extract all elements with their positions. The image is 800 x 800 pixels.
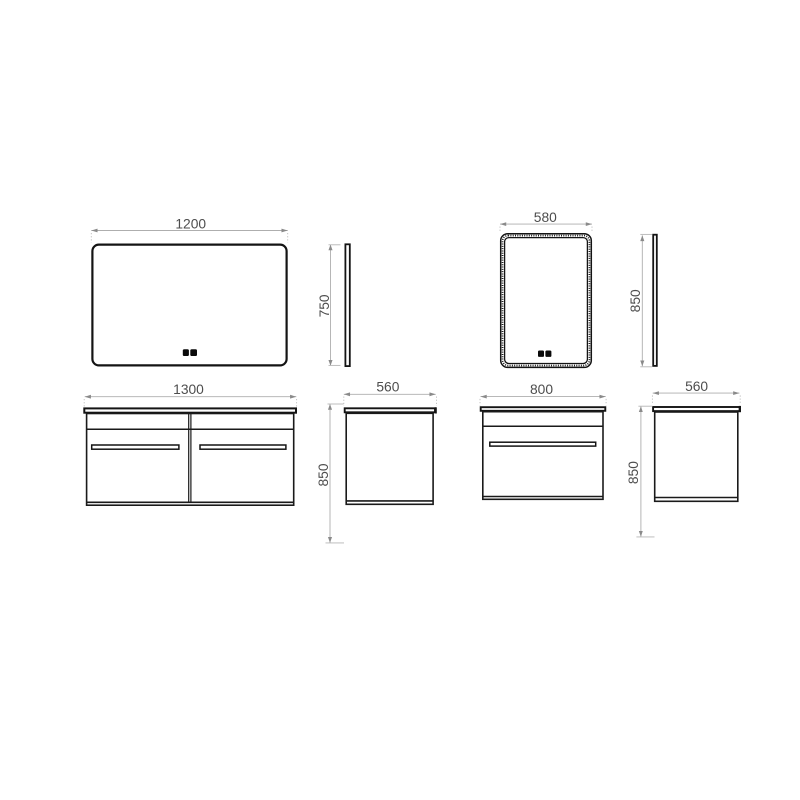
svg-text:1200: 1200 [175,216,206,231]
svg-text:1300: 1300 [173,382,204,397]
svg-text:580: 580 [534,210,557,225]
svg-text:560: 560 [685,379,708,394]
svg-text:850: 850 [316,463,331,486]
svg-text:560: 560 [376,379,399,394]
svg-text:850: 850 [628,289,643,312]
svg-text:800: 800 [530,382,553,397]
svg-text:850: 850 [626,461,641,484]
svg-text:750: 750 [317,294,332,317]
